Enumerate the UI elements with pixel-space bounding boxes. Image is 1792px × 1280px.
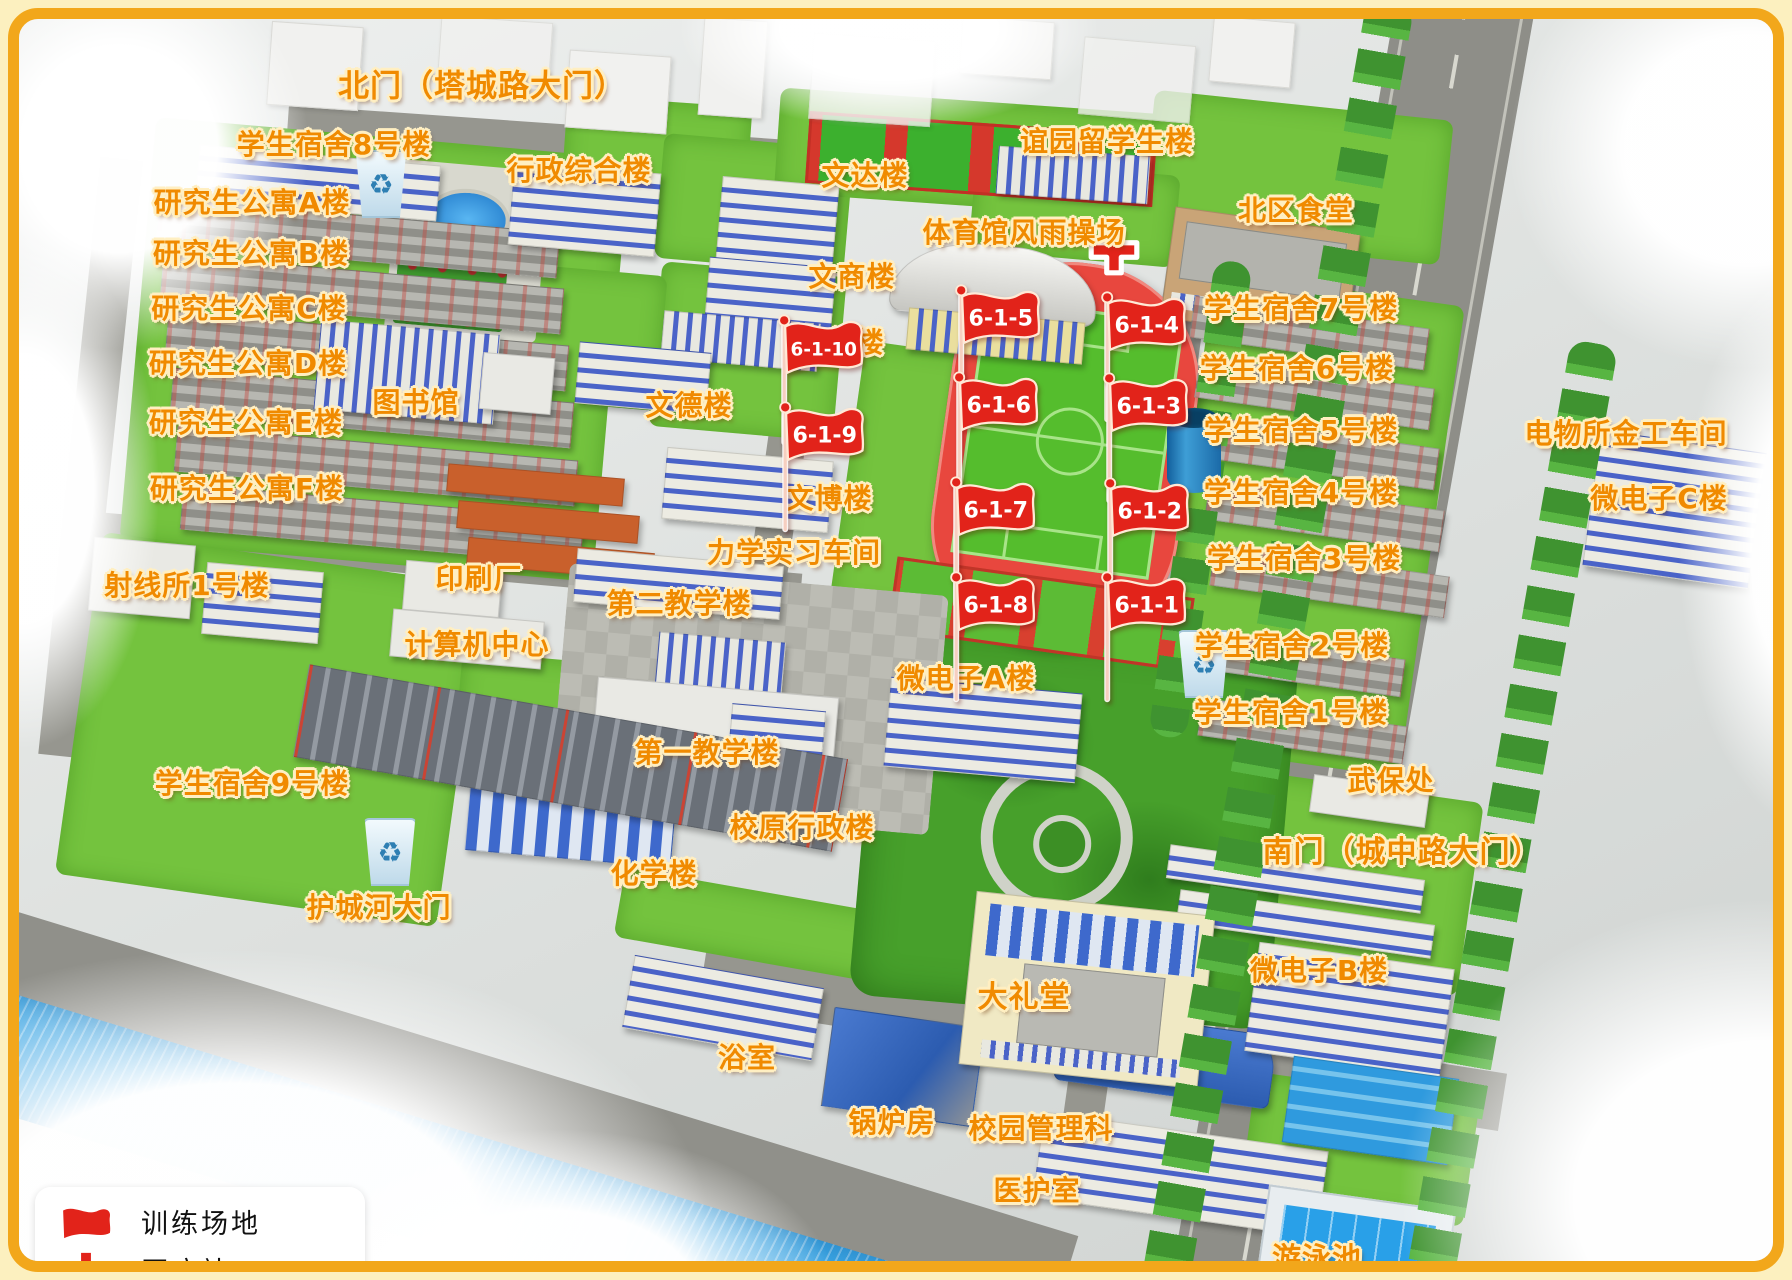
map-label: 校原行政楼 [729, 806, 874, 846]
map-label: 化学楼 [610, 852, 697, 892]
legend-label: 训练场地 [141, 1202, 261, 1241]
map-label: 武保处 [1347, 759, 1434, 799]
map-label: 第一教学楼 [634, 731, 779, 771]
map-label: 文达楼 [821, 154, 908, 194]
map-label: 微电子C楼 [1590, 477, 1728, 517]
map-label: 学生宿舍7号楼 [1204, 287, 1398, 327]
svg-text:6-1-4: 6-1-4 [1115, 313, 1179, 338]
map-label: 射线所1号楼 [104, 564, 269, 604]
map-label: 研究生公寓D楼 [149, 342, 347, 382]
svg-text:6-1-7: 6-1-7 [964, 498, 1028, 523]
map-label: 学生宿舍1号楼 [1194, 691, 1388, 731]
map-label: 学生宿舍4号楼 [1204, 471, 1398, 511]
map-label: 学生宿舍2号楼 [1195, 624, 1389, 664]
legend: 训练场地 医疗站 [35, 1187, 365, 1272]
map-label: 第二教学楼 [606, 582, 751, 622]
svg-text:6-1-3: 6-1-3 [1117, 394, 1181, 419]
map-label: 图书馆 [372, 381, 459, 421]
map-label: 行政综合楼 [506, 149, 651, 189]
svg-text:6-1-6: 6-1-6 [967, 393, 1031, 418]
svg-text:6-1-1: 6-1-1 [1115, 593, 1179, 618]
map-label: 计算机中心 [404, 623, 549, 663]
red-cross-icon [57, 1250, 115, 1272]
map-label: 北门（塔城路大门） [338, 61, 626, 106]
map-label: 医护室 [993, 1169, 1080, 1209]
map-label: 护城河大门 [306, 886, 451, 926]
map-label: 文商楼 [808, 255, 895, 295]
map-label: 锅炉房 [848, 1101, 935, 1141]
map-label: 研究生公寓E楼 [149, 401, 343, 441]
map-label: 体育馆风雨操场 [922, 211, 1125, 251]
svg-text:6-1-8: 6-1-8 [964, 593, 1028, 618]
svg-text:6-1-5: 6-1-5 [969, 306, 1033, 331]
svg-text:6-1-10: 6-1-10 [791, 339, 857, 360]
map-label: 校园管理科 [968, 1107, 1113, 1147]
map-label: 文德楼 [645, 384, 732, 424]
map-label: 游泳池 [1272, 1235, 1362, 1272]
map-label: 学生宿舍8号楼 [237, 123, 431, 163]
campus-map: ♻♻♻ 北门（塔城路大门）学生宿舍8号楼行政综合楼文达楼谊园留学生楼研究生公寓A… [8, 8, 1784, 1272]
map-label: 印刷厂 [435, 557, 522, 597]
legend-item-training-grounds: 训练场地 [35, 1202, 365, 1242]
map-label: 学生宿舍9号楼 [155, 762, 349, 802]
legend-item-medical-station: 医疗站 [35, 1250, 365, 1273]
map-label: 电物所金工车间 [1524, 412, 1727, 452]
map-label: 研究生公寓F楼 [150, 467, 344, 507]
map-label: 大礼堂 [978, 972, 1071, 1016]
recycle-bin-icon: ♻ [363, 818, 417, 886]
map-label: 谊园留学生楼 [1020, 120, 1194, 160]
map-label: 研究生公寓B楼 [153, 232, 349, 272]
map-label: 研究生公寓A楼 [154, 181, 351, 221]
map-label: 北区食堂 [1238, 189, 1354, 229]
map-label: 学生宿舍3号楼 [1207, 537, 1401, 577]
legend-label: 医疗站 [141, 1250, 231, 1273]
map-label: 南门（城中路大门） [1263, 827, 1542, 871]
training-flag-marker: 6-1-8 [947, 569, 1039, 713]
training-flag-marker: 6-1-1 [1098, 569, 1190, 713]
map-label: 浴室 [718, 1036, 776, 1076]
map-label: 学生宿舍6号楼 [1200, 347, 1394, 387]
red-flag-icon [57, 1202, 115, 1242]
svg-text:6-1-9: 6-1-9 [793, 423, 857, 448]
map-label: 研究生公寓C楼 [151, 287, 347, 327]
map-label: 微电子B楼 [1250, 949, 1388, 989]
svg-text:6-1-2: 6-1-2 [1118, 499, 1182, 524]
training-flag-marker: 6-1-9 [776, 399, 868, 543]
map-label: 学生宿舍5号楼 [1204, 409, 1398, 449]
